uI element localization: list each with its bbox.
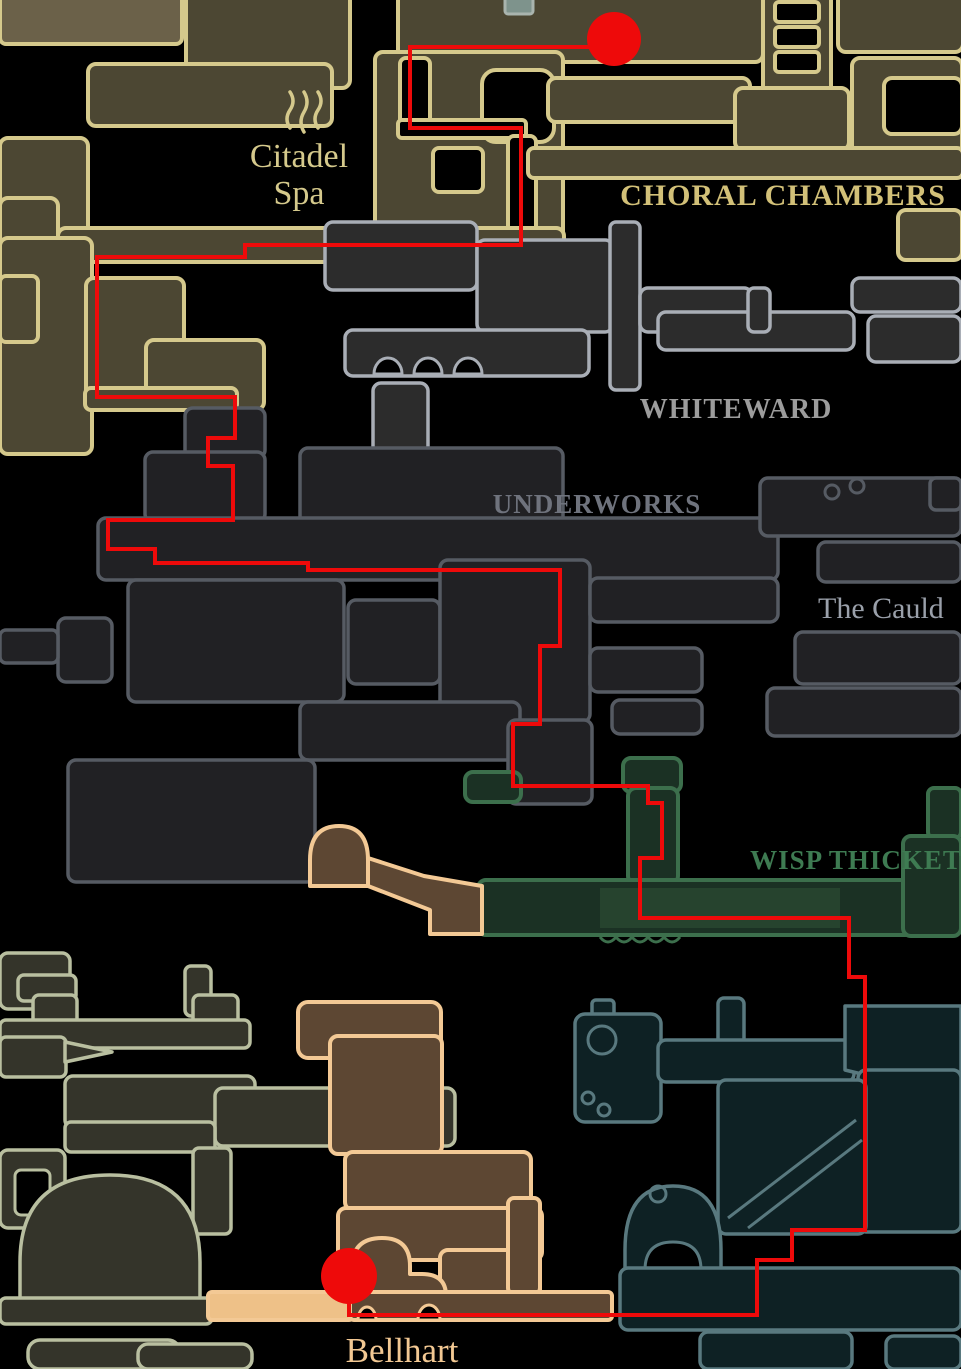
- region-brown-passage: [310, 826, 482, 934]
- label-bellhart: Bellhart: [346, 1331, 459, 1369]
- label-whiteward: WHITEWARD: [640, 394, 833, 425]
- route-end-marker[interactable]: [321, 1248, 377, 1304]
- game-map[interactable]: Citadel Spa CHORAL CHAMBERS WHITEWARD UN…: [0, 0, 961, 1369]
- region-bellhart: [208, 1002, 612, 1320]
- map-stage: Citadel Spa CHORAL CHAMBERS WHITEWARD UN…: [0, 0, 961, 1369]
- label-underworks: UNDERWORKS: [493, 489, 702, 519]
- label-citadel-spa-line2: Spa: [274, 175, 325, 212]
- label-citadel-spa-line1: Citadel: [250, 138, 348, 175]
- region-choral-chambers: [0, 0, 961, 454]
- label-the-cauldron: The Cauld: [818, 592, 944, 625]
- route-start-marker[interactable]: [587, 12, 641, 66]
- label-choral-chambers: CHORAL CHAMBERS: [620, 179, 946, 212]
- label-wisp-thicket: WISP THICKET: [750, 845, 961, 875]
